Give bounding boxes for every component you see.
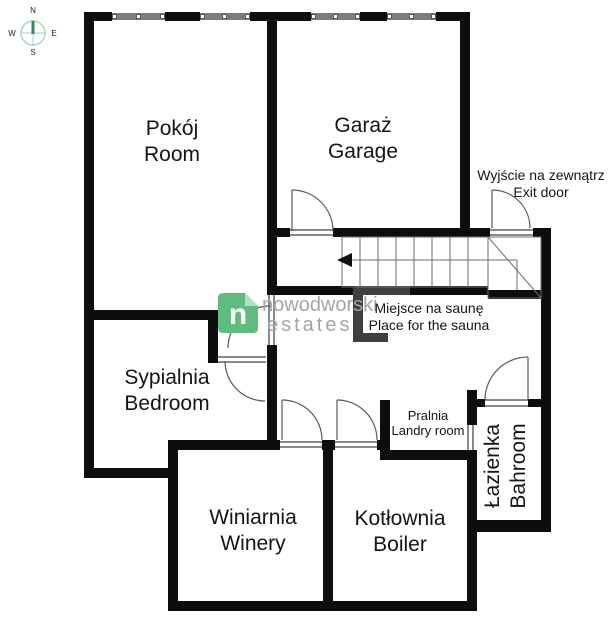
door-threshold	[218, 356, 266, 363]
wall	[467, 520, 551, 532]
room-name-en: Winery	[209, 531, 297, 557]
wall	[528, 399, 541, 407]
door-threshold	[280, 441, 322, 448]
annotation-exit-door: Wyjście na zewnątrz Exit door	[477, 167, 604, 201]
wall	[267, 12, 277, 237]
logo-fold	[245, 293, 258, 306]
stair-landing	[488, 237, 541, 298]
wall	[168, 443, 178, 611]
window-mullion	[200, 14, 205, 19]
wall	[467, 390, 477, 425]
compass-west-label: W	[8, 29, 16, 38]
room-name-pl: Łazienka	[480, 423, 506, 508]
wall	[410, 286, 488, 295]
room-name-en: Room	[144, 142, 200, 168]
room-name-en: Bahroom	[506, 423, 532, 508]
brand-watermark: nowodworski estates	[262, 295, 378, 335]
room-label-kotlownia: Kotłownia Boiler	[354, 506, 445, 558]
window-mullion	[333, 14, 338, 19]
wall	[460, 12, 470, 237]
window-mullion	[136, 14, 141, 19]
stair-direction-arrow	[337, 253, 352, 267]
window-mullion	[245, 14, 250, 19]
room-label-pokoj: Pokój Room	[144, 116, 200, 168]
room-name-pl: Garaż	[328, 113, 398, 139]
room-label-pralnia: Pralnia Landry room	[392, 408, 465, 438]
room-name-pl: Pralnia	[392, 408, 465, 423]
annotation-pl: Miejsce na saunę	[369, 300, 490, 317]
door-threshold	[485, 399, 528, 407]
wall	[467, 399, 485, 407]
wall	[84, 468, 170, 478]
brand-logo: n	[218, 293, 258, 333]
room-name-pl: Kotłownia	[354, 506, 445, 532]
wall	[208, 310, 218, 363]
door-threshold	[490, 229, 533, 236]
door-threshold	[335, 441, 377, 448]
wall	[165, 12, 200, 21]
door-threshold	[290, 229, 333, 236]
window-mullion	[431, 14, 436, 19]
annotation-sauna: Miejsce na saunę Place for the sauna	[369, 300, 490, 334]
wall	[360, 12, 387, 21]
room-name-pl: Pokój	[144, 116, 200, 142]
door-swing-arc-boiler	[337, 400, 377, 440]
brand-name-secondary: estates	[267, 315, 378, 335]
annotation-en: Exit door	[477, 184, 604, 201]
wall	[333, 228, 490, 237]
room-name-en: Garage	[328, 139, 398, 165]
compass-south-label: S	[30, 48, 35, 57]
door-threshold	[467, 425, 474, 450]
door-swing-arc-garage	[292, 190, 333, 231]
stair-winder-line	[488, 237, 541, 298]
window-mullion	[387, 14, 392, 19]
room-label-winiarnia: Winiarnia Winery	[209, 505, 297, 557]
annotation-pl: Wyjście na zewnątrz	[477, 167, 604, 184]
wall	[541, 228, 551, 532]
wall	[380, 450, 477, 460]
window-mullion	[112, 14, 117, 19]
window-mullion	[409, 14, 414, 19]
room-name-en: Boiler	[354, 532, 445, 558]
compass-north-label: N	[30, 6, 36, 15]
compass-rose: N W E S	[8, 6, 56, 57]
compass-east-label: E	[51, 29, 56, 38]
window-mullion	[311, 14, 316, 19]
wall	[267, 228, 290, 237]
window-mullion	[222, 14, 227, 19]
wall	[84, 310, 218, 320]
room-label-garaz: Garaż Garage	[328, 113, 398, 165]
window-mullion	[355, 14, 360, 19]
room-name-pl: Winiarnia	[209, 505, 297, 531]
annotation-en: Place for the sauna	[369, 317, 490, 334]
door-swing-arc-winery	[282, 400, 322, 440]
window-mullion	[160, 14, 165, 19]
room-name-pl: Sypialnia	[124, 365, 209, 391]
room-name-en: Bedroom	[124, 391, 209, 417]
wall	[84, 12, 94, 478]
wall	[168, 440, 280, 450]
door-swing-arc-bedroom	[225, 361, 265, 401]
wall	[267, 345, 277, 449]
stair-flight	[342, 237, 488, 287]
room-label-sypialnia: Sypialnia Bedroom	[124, 365, 209, 417]
brand-name: nowodworski	[262, 295, 378, 315]
room-name-en: Landry room	[392, 423, 465, 438]
floor-plan: N W E S n nowodworski estates Pokój Room…	[0, 0, 615, 624]
door-swing-arc-bathroom	[485, 357, 528, 400]
logo-letter: n	[229, 298, 247, 331]
wall	[323, 440, 333, 611]
wall	[250, 12, 311, 21]
room-label-lazienka: Łazienka Bahroom	[480, 423, 532, 508]
